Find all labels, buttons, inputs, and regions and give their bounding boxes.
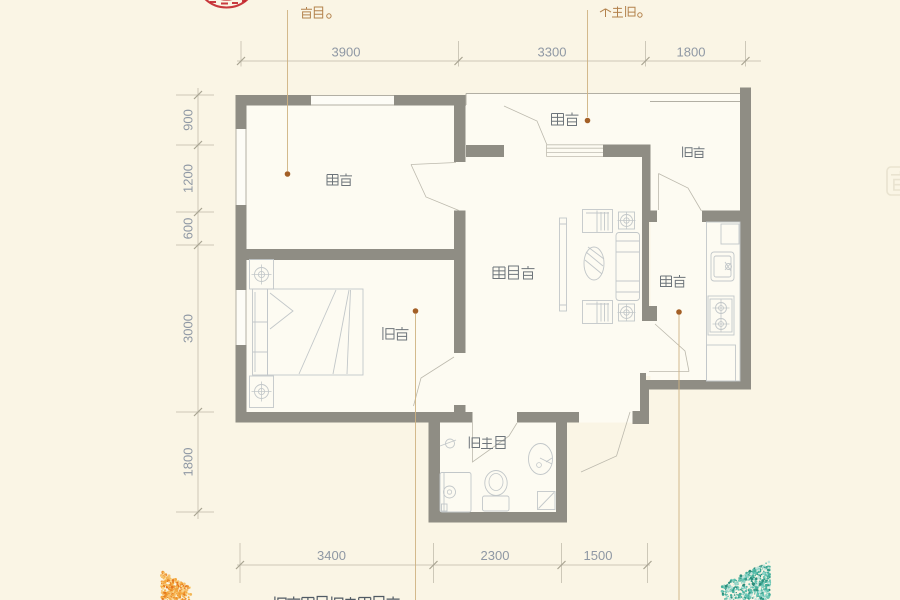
svg-text:2300: 2300 (481, 548, 510, 563)
svg-text:3900: 3900 (332, 45, 361, 60)
svg-text:900: 900 (181, 109, 196, 131)
svg-text:1800: 1800 (181, 448, 196, 477)
svg-text:1200: 1200 (181, 164, 196, 193)
svg-text:1500: 1500 (584, 548, 613, 563)
svg-text:3300: 3300 (538, 45, 567, 60)
svg-text:1800: 1800 (677, 45, 706, 60)
svg-text:3400: 3400 (317, 548, 346, 563)
svg-text:600: 600 (181, 218, 196, 240)
svg-text:3000: 3000 (181, 314, 196, 343)
